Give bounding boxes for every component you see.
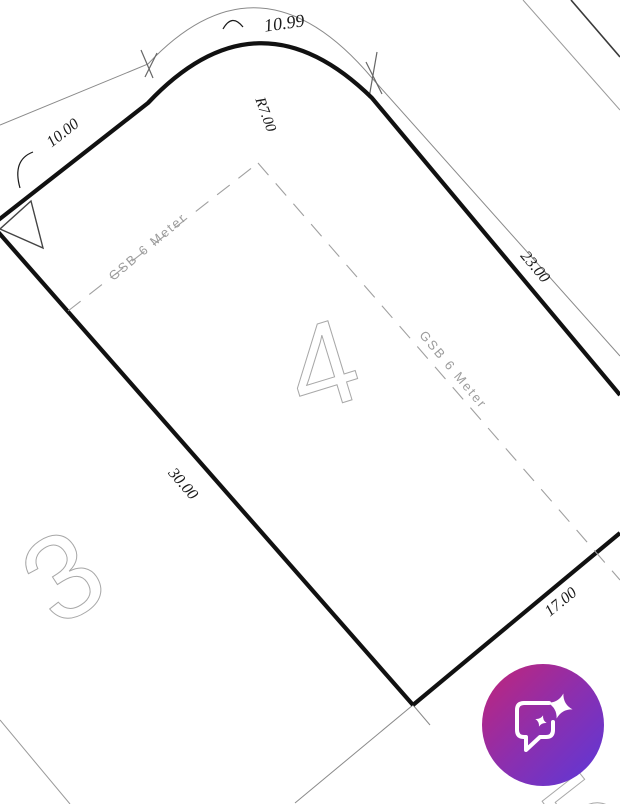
setback-label-northeast: GSB 6 Meter (416, 328, 490, 412)
boundary-extension-stub (413, 705, 430, 725)
site-plan-page: 10.99 10.00 R7.00 23.00 30.00 17.00 GSB … (0, 0, 620, 804)
arc-length-symbol (223, 20, 243, 29)
plot-number-3: 3 (0, 502, 128, 651)
chat-fab-circle[interactable] (482, 664, 604, 786)
parcel-boundary-line-bottomleft (0, 720, 70, 804)
dimension-tick (369, 52, 377, 98)
chat-fab-button[interactable] (482, 664, 604, 786)
parcel-boundary-line-topright (523, 0, 620, 110)
parcel-boundary-line-bottom (295, 705, 413, 803)
dimension-label-southeast: 17.00 (542, 584, 581, 620)
arc-length-symbol (18, 152, 33, 188)
dimension-label-radius: R7.00 (251, 94, 279, 134)
road-edge-line (571, 0, 620, 57)
site-plan-drawing: 10.99 10.00 R7.00 23.00 30.00 17.00 GSB … (0, 0, 620, 804)
setback-label-northwest: GSB 6 Meter (106, 210, 190, 284)
dimension-label-northwest: 10.00 (44, 115, 83, 151)
dimension-label-arc: 10.99 (263, 10, 306, 35)
plot-number-4: 4 (271, 292, 374, 440)
dimension-label-southwest: 30.00 (164, 464, 201, 503)
